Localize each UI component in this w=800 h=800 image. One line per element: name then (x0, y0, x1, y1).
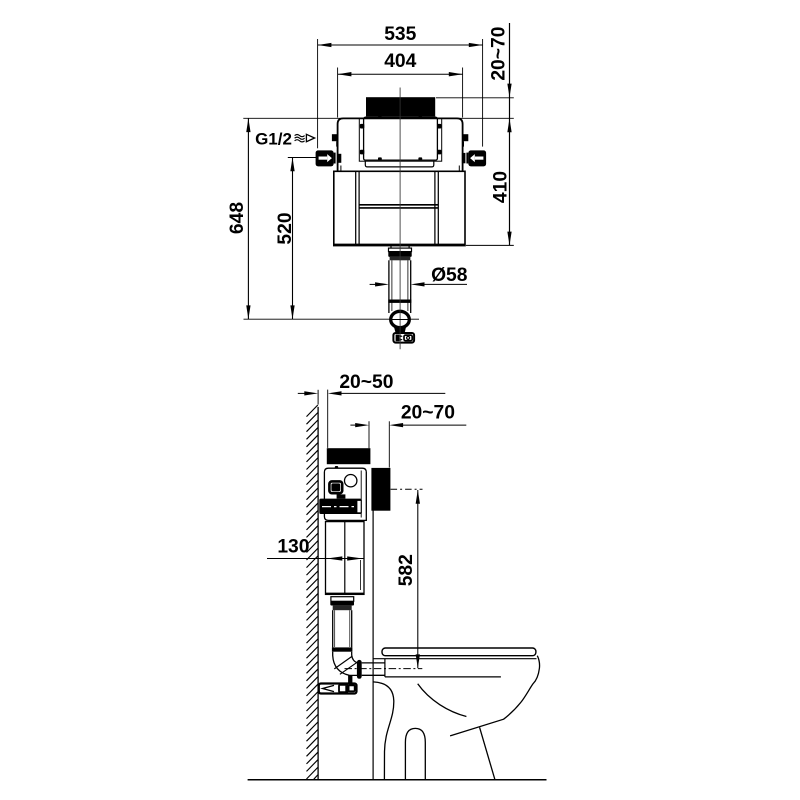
svg-text:20~70: 20~70 (489, 27, 510, 81)
svg-text:535: 535 (384, 24, 416, 45)
svg-text:G1/2: G1/2 (255, 129, 292, 148)
svg-text:404: 404 (384, 51, 416, 72)
svg-text:410: 410 (490, 171, 511, 203)
svg-text:20~50: 20~50 (339, 372, 393, 393)
svg-text:130: 130 (277, 536, 309, 557)
svg-text:582: 582 (396, 554, 417, 586)
svg-text:648: 648 (227, 202, 248, 234)
svg-text:20~70: 20~70 (401, 403, 455, 424)
svg-text:Ø58: Ø58 (431, 265, 468, 286)
svg-text:520: 520 (275, 212, 296, 244)
